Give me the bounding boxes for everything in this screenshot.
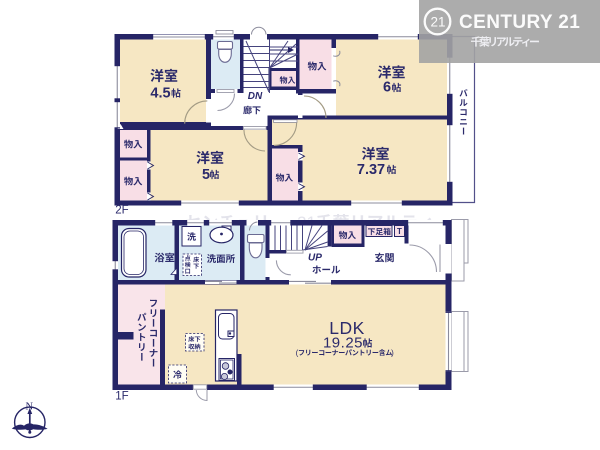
svg-text:): ) bbox=[391, 349, 394, 358]
svg-text:6: 6 bbox=[383, 80, 391, 96]
svg-text:7.37: 7.37 bbox=[357, 162, 385, 178]
svg-text:DN: DN bbox=[248, 91, 263, 102]
svg-text:4.5: 4.5 bbox=[150, 86, 170, 102]
svg-text:21: 21 bbox=[430, 15, 445, 30]
svg-text:UP: UP bbox=[308, 253, 322, 264]
svg-text:1F: 1F bbox=[115, 391, 128, 403]
svg-text:5: 5 bbox=[202, 167, 210, 183]
svg-text:T: T bbox=[397, 227, 402, 236]
svg-text:(: ( bbox=[296, 349, 299, 358]
svg-text:2F: 2F bbox=[115, 205, 128, 217]
svg-text:CENTURY 21: CENTURY 21 bbox=[459, 12, 580, 33]
svg-text:19.25: 19.25 bbox=[323, 335, 363, 352]
